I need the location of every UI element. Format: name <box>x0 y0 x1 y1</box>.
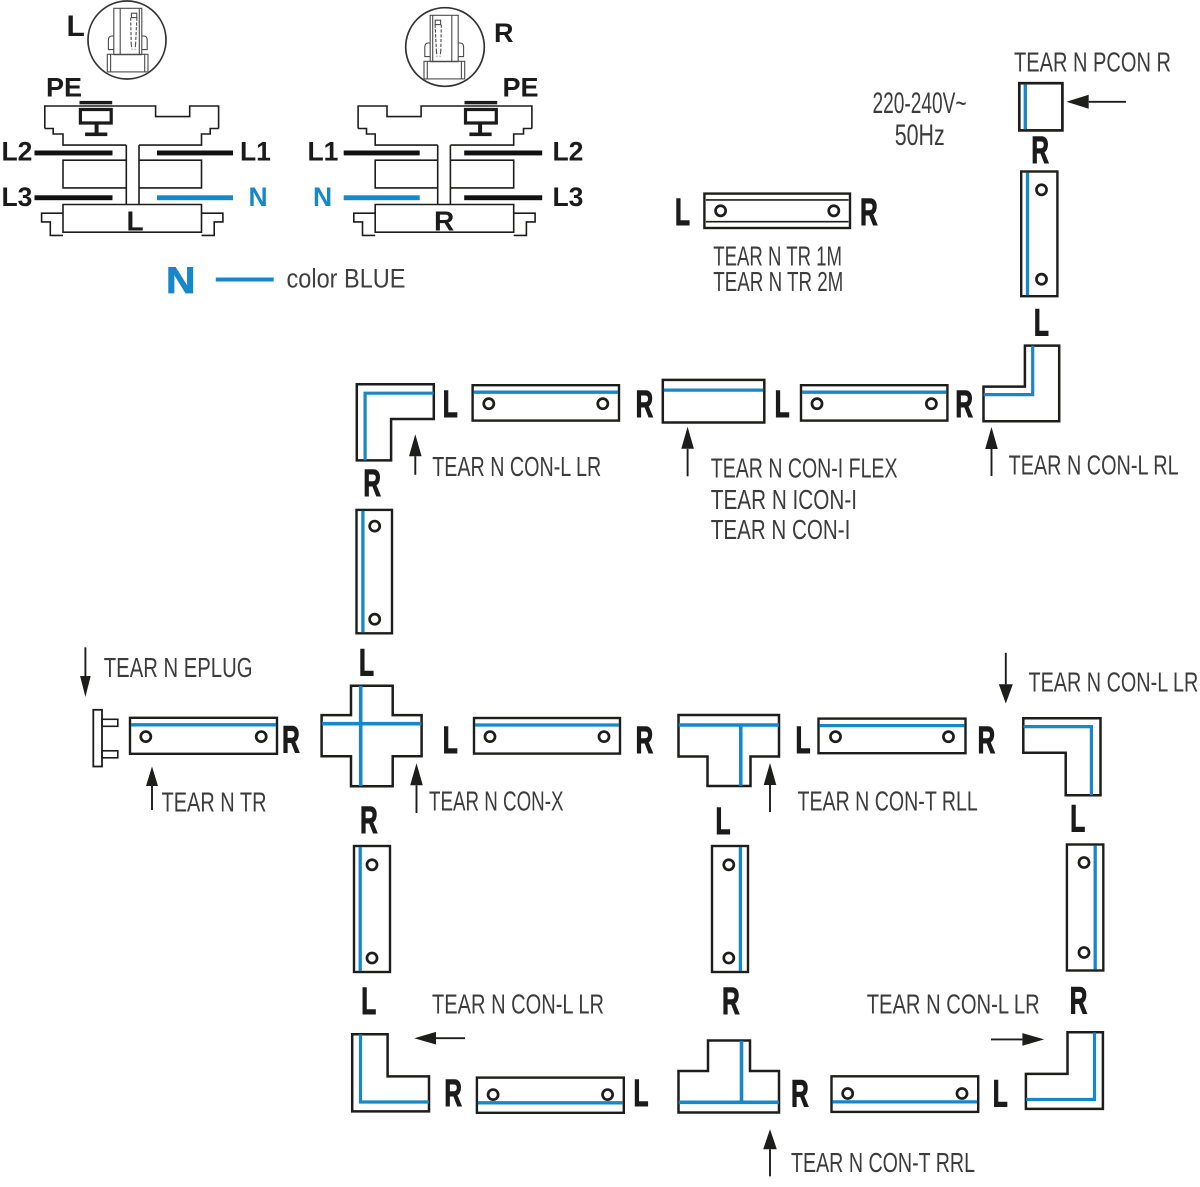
svg-text:N: N <box>249 182 268 212</box>
svg-text:L: L <box>775 384 790 426</box>
svg-text:L: L <box>634 1073 649 1115</box>
svg-text:R: R <box>444 1073 462 1115</box>
svg-text:L: L <box>796 720 811 762</box>
svg-text:L1: L1 <box>308 137 339 167</box>
svg-text:TEAR N CON-L LR: TEAR N CON-L LR <box>432 450 601 482</box>
svg-text:TEAR N CON-L LR: TEAR N CON-L LR <box>867 987 1040 1019</box>
svg-text:L: L <box>993 1074 1008 1116</box>
svg-text:L: L <box>716 801 731 843</box>
svg-text:TEAR N CON-T RLL: TEAR N CON-T RLL <box>798 784 978 816</box>
svg-text:R: R <box>955 384 973 426</box>
svg-text:R: R <box>636 384 654 426</box>
svg-text:R: R <box>722 981 740 1023</box>
svg-text:L: L <box>67 10 85 43</box>
svg-text:L: L <box>443 720 458 762</box>
svg-text:L2: L2 <box>2 137 33 167</box>
svg-text:TEAR N EPLUG: TEAR N EPLUG <box>104 651 253 683</box>
svg-text:R: R <box>360 800 378 842</box>
svg-text:L1: L1 <box>240 137 271 167</box>
svg-text:PE: PE <box>46 73 82 103</box>
svg-text:R: R <box>636 720 654 762</box>
svg-text:R: R <box>434 206 454 237</box>
svg-text:TEAR N CON-L LR: TEAR N CON-L LR <box>1029 665 1199 697</box>
svg-text:TEAR N CON-L LR: TEAR N CON-L LR <box>432 988 604 1020</box>
svg-text:color BLUE: color BLUE <box>287 262 406 293</box>
svg-text:L: L <box>1070 798 1085 840</box>
svg-text:R: R <box>1070 980 1088 1022</box>
svg-text:L3: L3 <box>553 182 584 212</box>
svg-text:TEAR N ICON-I: TEAR N ICON-I <box>711 483 857 515</box>
svg-text:R: R <box>791 1074 809 1116</box>
svg-text:L: L <box>361 981 376 1023</box>
svg-text:R: R <box>1031 130 1049 172</box>
svg-text:L: L <box>359 643 374 685</box>
svg-text:PE: PE <box>503 73 539 103</box>
svg-text:L: L <box>443 384 458 426</box>
svg-text:TEAR N CON-I FLEX: TEAR N CON-I FLEX <box>711 451 898 483</box>
svg-text:TEAR N CON-X: TEAR N CON-X <box>429 785 564 817</box>
svg-text:R: R <box>282 720 300 762</box>
svg-text:L3: L3 <box>2 182 33 212</box>
svg-text:R: R <box>363 463 381 505</box>
svg-text:50Hz: 50Hz <box>895 119 945 152</box>
svg-text:TEAR N CON-T RRL: TEAR N CON-T RRL <box>791 1146 975 1178</box>
svg-text:N: N <box>166 259 196 301</box>
svg-text:L: L <box>675 192 690 234</box>
svg-text:TEAR N CON-I: TEAR N CON-I <box>711 513 851 545</box>
svg-text:220-240V~: 220-240V~ <box>873 87 967 120</box>
svg-text:R: R <box>860 192 878 234</box>
svg-text:R: R <box>494 18 514 48</box>
svg-text:L2: L2 <box>553 137 584 167</box>
svg-text:L: L <box>127 206 144 237</box>
svg-text:TEAR N CON-L RL: TEAR N CON-L RL <box>1009 449 1179 481</box>
svg-text:TEAR N TR: TEAR N TR <box>162 786 267 818</box>
svg-text:TEAR N PCON R: TEAR N PCON R <box>1014 45 1171 77</box>
svg-text:L: L <box>1034 302 1049 344</box>
svg-text:N: N <box>313 182 332 212</box>
svg-text:TEAR N TR 2M: TEAR N TR 2M <box>713 265 843 297</box>
svg-text:R: R <box>978 720 996 762</box>
